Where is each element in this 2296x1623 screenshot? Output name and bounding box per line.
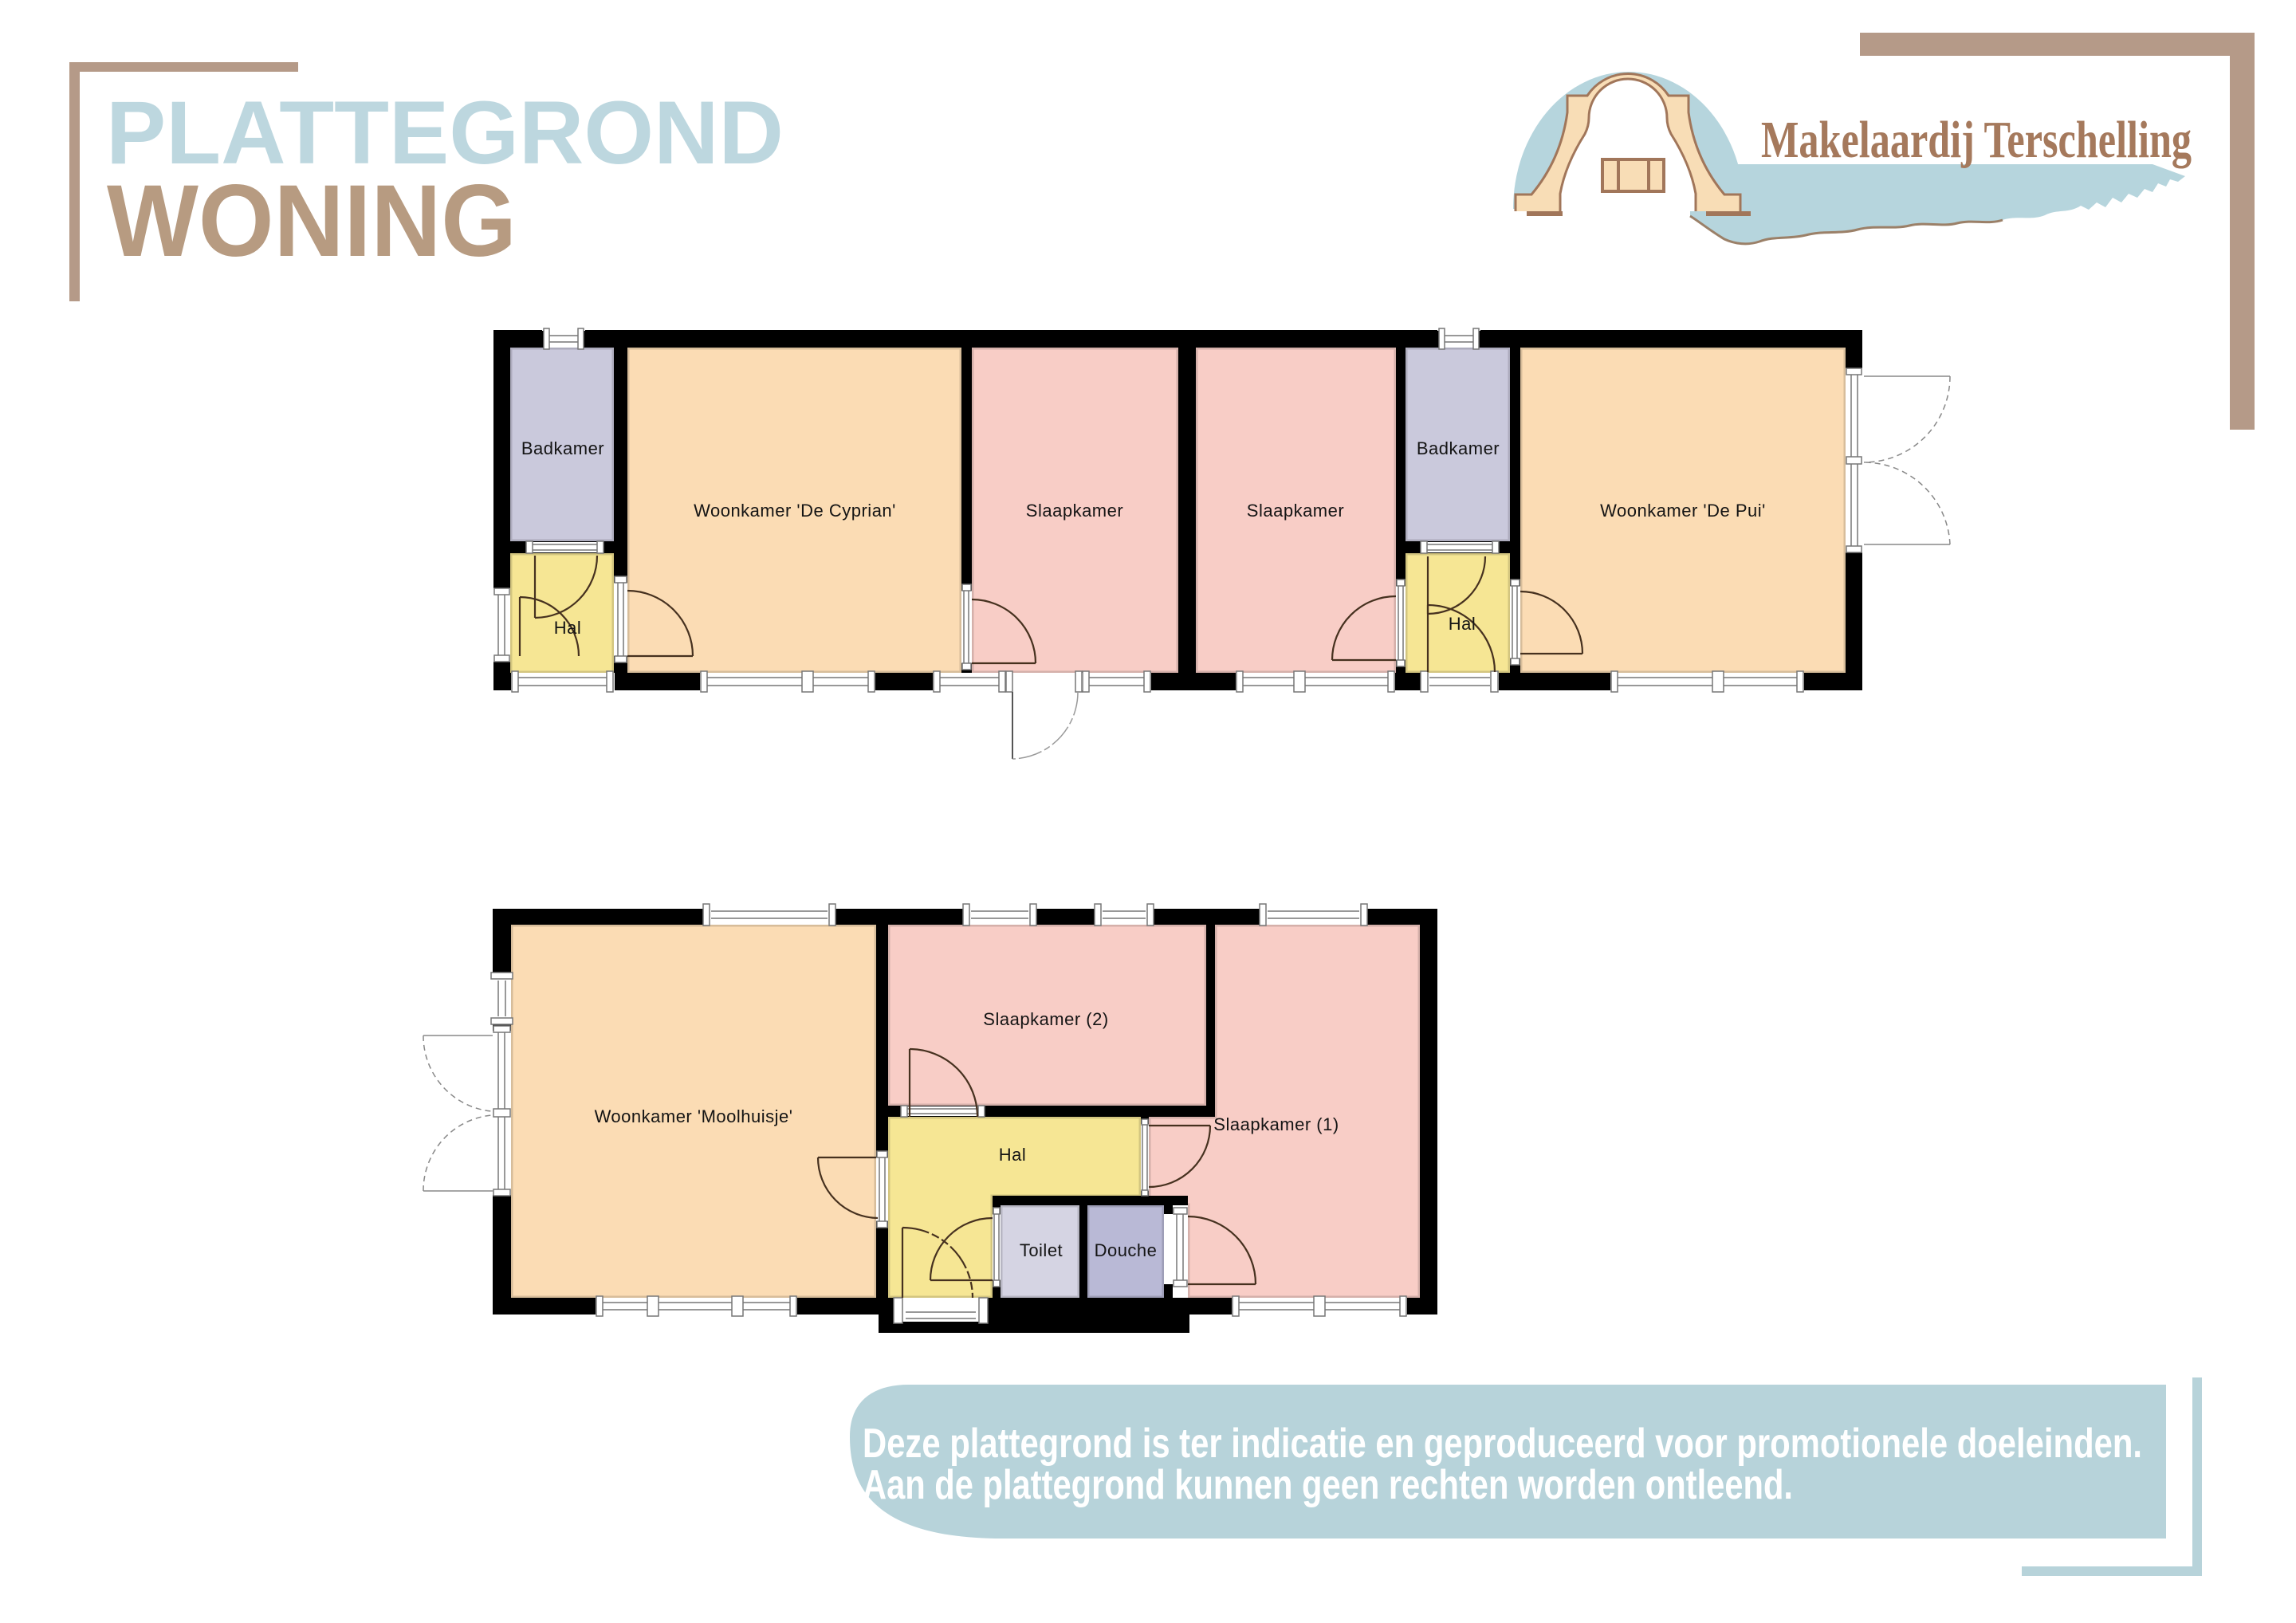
svg-text:Badkamer: Badkamer bbox=[521, 438, 604, 458]
svg-text:Hal: Hal bbox=[1449, 614, 1476, 634]
svg-text:Woonkamer 'Moolhuisje': Woonkamer 'Moolhuisje' bbox=[595, 1106, 793, 1126]
svg-text:Toilet: Toilet bbox=[1020, 1240, 1063, 1260]
svg-text:Slaapkamer (2): Slaapkamer (2) bbox=[983, 1009, 1108, 1029]
svg-text:Hal: Hal bbox=[554, 618, 582, 638]
svg-text:Aan de plattegrond kunnen geen: Aan de plattegrond kunnen geen rechten w… bbox=[863, 1462, 1793, 1508]
svg-text:Badkamer: Badkamer bbox=[1417, 438, 1500, 458]
svg-text:Woonkamer 'De Pui': Woonkamer 'De Pui' bbox=[1600, 501, 1766, 521]
svg-text:Makelaardij Terschelling: Makelaardij Terschelling bbox=[1761, 111, 2192, 169]
svg-text:Deze plattegrond is ter indica: Deze plattegrond is ter indicatie en gep… bbox=[863, 1421, 2142, 1467]
svg-text:Slaapkamer (1): Slaapkamer (1) bbox=[1213, 1114, 1339, 1134]
svg-text:WONING: WONING bbox=[107, 164, 517, 278]
svg-text:Douche: Douche bbox=[1095, 1240, 1158, 1260]
svg-text:Hal: Hal bbox=[999, 1145, 1027, 1165]
svg-text:Woonkamer 'De Cyprian': Woonkamer 'De Cyprian' bbox=[694, 501, 896, 521]
svg-text:Slaapkamer: Slaapkamer bbox=[1247, 501, 1344, 521]
svg-text:Slaapkamer: Slaapkamer bbox=[1026, 501, 1123, 521]
